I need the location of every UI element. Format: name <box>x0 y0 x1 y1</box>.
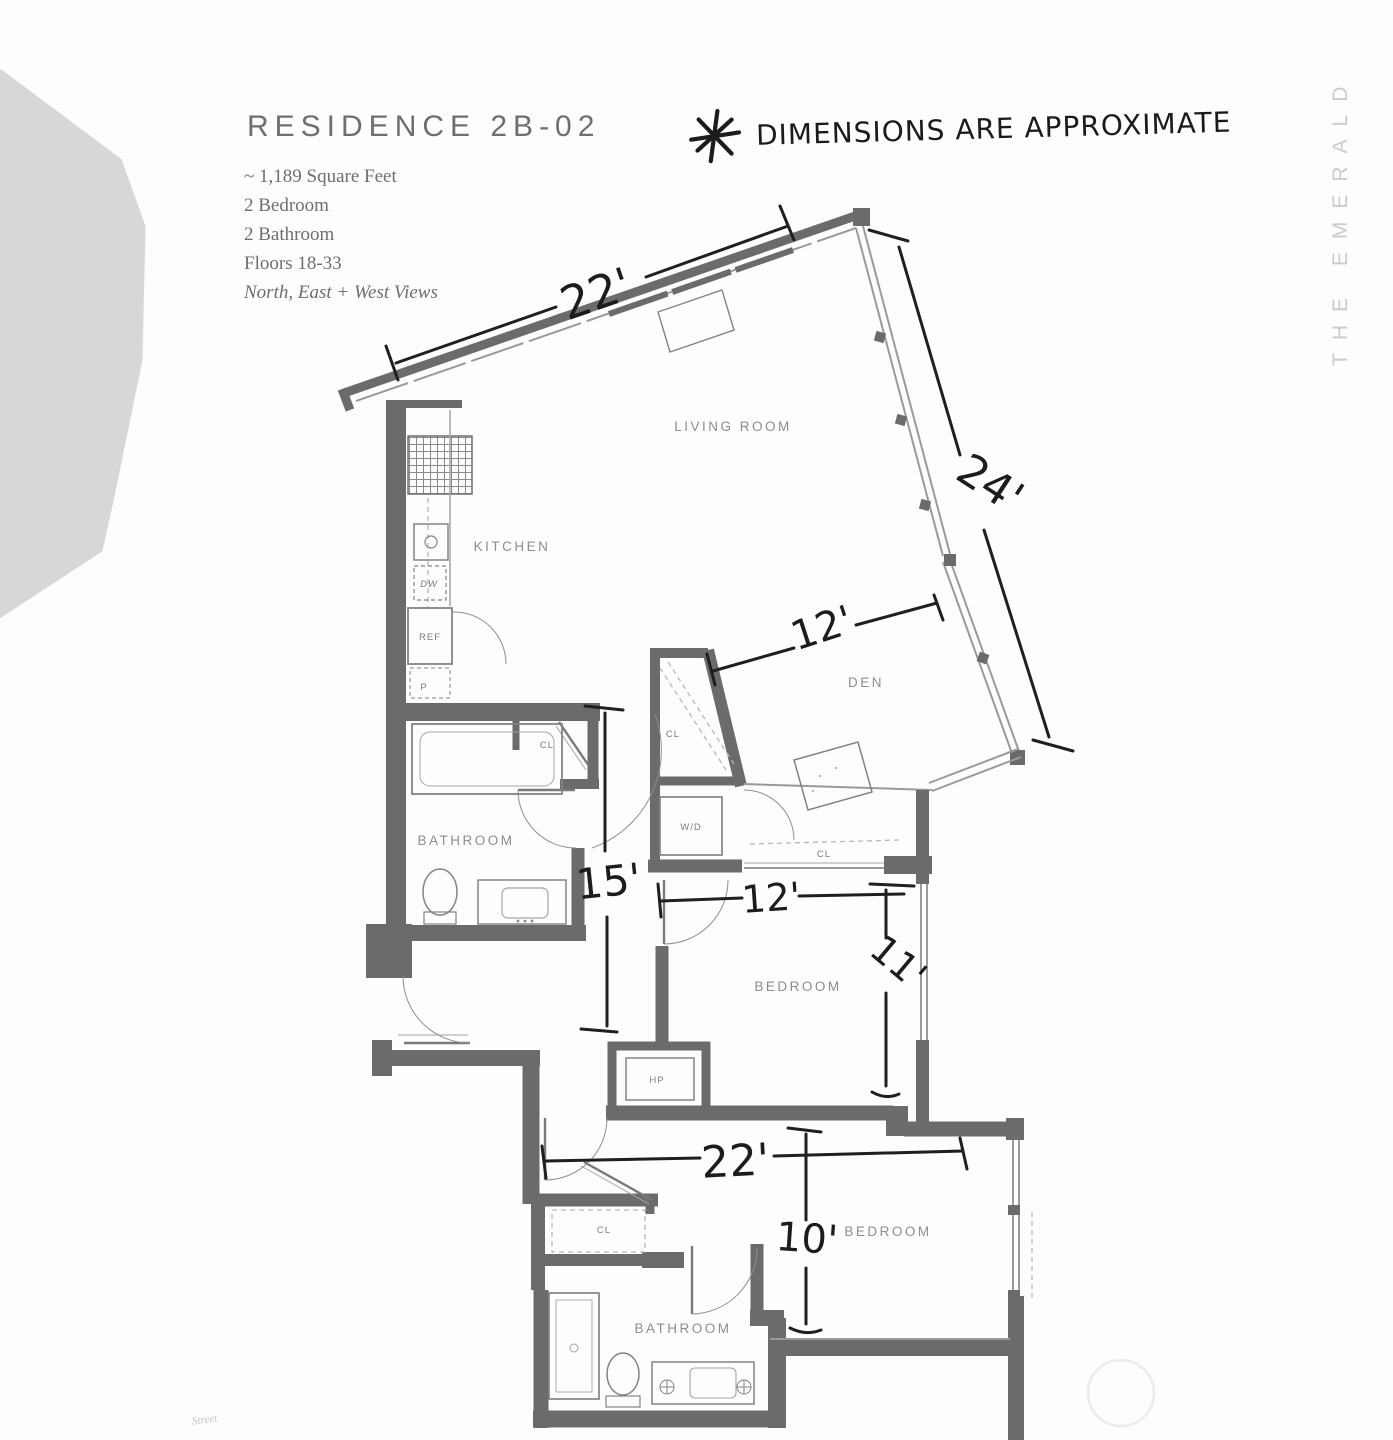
dimension-bedroom-lower-depth: 10' <box>774 1214 839 1264</box>
faint-circle <box>1088 1360 1154 1426</box>
dimension-den-width: 12' <box>785 597 858 660</box>
label-bathroom-upper: BATHROOM <box>418 833 515 848</box>
label-bathroom-lower: BATHROOM <box>635 1321 732 1336</box>
label-den: DEN <box>848 675 884 690</box>
label-bedroom-lower: BEDROOM <box>844 1224 931 1239</box>
label-closet-den: CL <box>666 729 680 740</box>
label-bedroom-middle: BEDROOM <box>754 979 841 994</box>
range-icon <box>408 436 472 494</box>
shower-icon <box>549 1293 599 1399</box>
kitchen-sink-icon <box>414 524 448 560</box>
dimension-lower-width: 22' <box>700 1134 771 1188</box>
label-refrigerator: REF <box>419 632 441 643</box>
label-closet-bedroom-middle: CL <box>817 849 831 860</box>
label-washer-dryer: W/D <box>680 822 701 833</box>
pantry-icon <box>410 668 450 698</box>
floorplan-page: RESIDENCE 2B-02 ~ 1,189 Square Feet 2 Be… <box>0 0 1393 1440</box>
label-closet-bedroom-lower: CL <box>597 1225 611 1236</box>
dimension-bedroom-middle-depth: 11' <box>862 926 935 998</box>
desk-icon <box>794 742 872 810</box>
floorplan-drawing: 22' 24' 12' 15' 12' 11' 22' 10' LIVING R… <box>0 0 1393 1440</box>
label-dishwasher: DW <box>420 579 438 590</box>
toilet-icon <box>423 869 457 915</box>
label-kitchen: KITCHEN <box>474 539 551 554</box>
label-living-room: LIVING ROOM <box>674 419 792 434</box>
dimension-hall-depth: 15' <box>574 854 644 910</box>
toilet-icon <box>607 1353 639 1395</box>
label-closet-entry: CL <box>540 740 554 751</box>
dimension-living-width: 22' <box>553 257 638 331</box>
label-pantry: P <box>420 682 427 693</box>
room-labels: LIVING ROOM KITCHEN DEN BATHROOM BEDROOM… <box>418 419 932 1336</box>
dimension-bedroom-middle-width: 12' <box>740 874 802 922</box>
label-heat-pump: HP <box>649 1075 664 1086</box>
bathtub-icon <box>412 724 562 794</box>
